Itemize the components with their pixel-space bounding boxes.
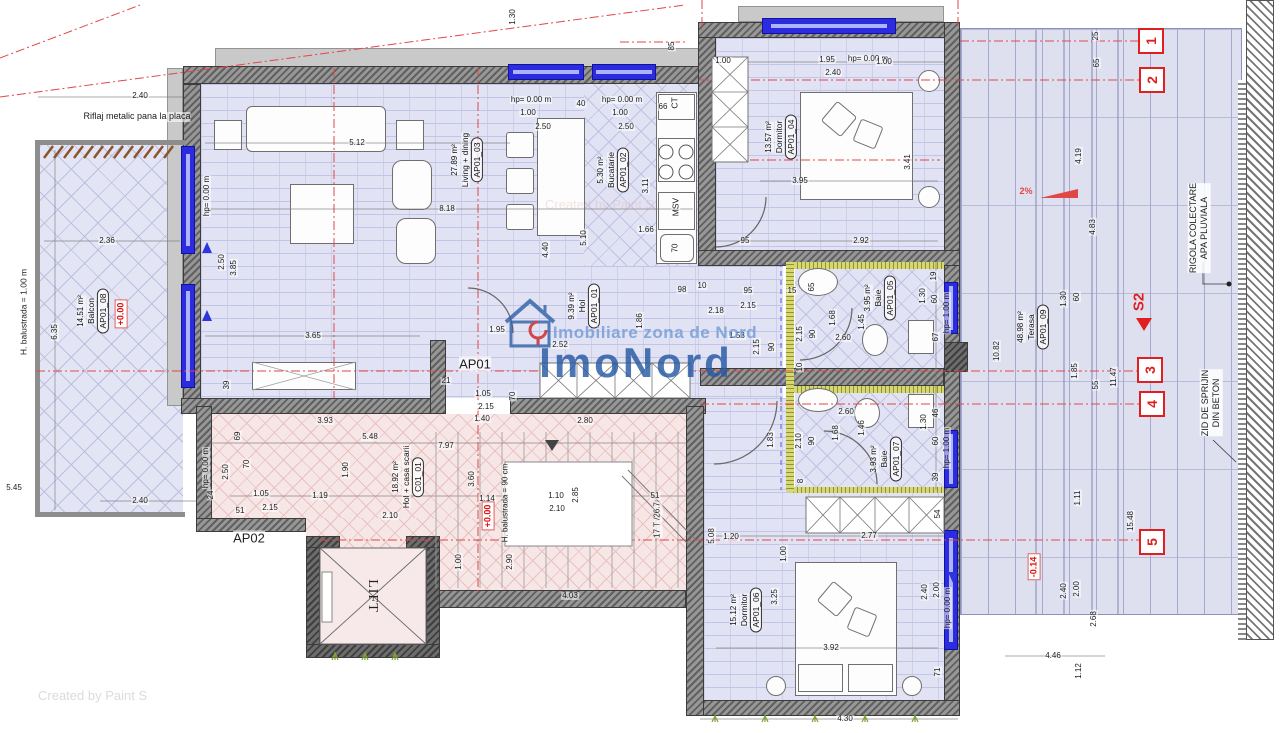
unit-label-ap01: AP01 bbox=[459, 357, 491, 372]
riflaj-note: Riflaj metalic pana la placa bbox=[83, 112, 190, 122]
section-label: S2 bbox=[1131, 293, 1148, 311]
balustrade-note: H. balustrada = 1.00 m bbox=[19, 269, 28, 355]
level-marker: +0.00 bbox=[482, 502, 495, 531]
lift-label: LIFT bbox=[364, 579, 380, 613]
grid-marker-5: 5 bbox=[1139, 529, 1165, 555]
balustrade-note-stairs: H. balustrada = 90 cm bbox=[502, 464, 511, 542]
zid-line1: ZID DE SPRIJIN bbox=[1200, 370, 1210, 437]
slope-label: 2% bbox=[1019, 186, 1032, 196]
zid-line2: DIN BETON bbox=[1211, 379, 1221, 428]
level-marker: +0.00 bbox=[115, 300, 128, 329]
unit-label-ap02: AP02 bbox=[233, 531, 265, 546]
sink-label: 70 bbox=[672, 244, 681, 253]
level-marker: -0.14 bbox=[1028, 554, 1041, 581]
grid-marker-4: 4 bbox=[1139, 391, 1165, 417]
grid-marker-1: 1 bbox=[1138, 28, 1164, 54]
rigola-line1: RIGOLA COLECTARE bbox=[1188, 183, 1198, 273]
boiler-label: CT bbox=[670, 97, 679, 108]
watermark-brand: ImoNord bbox=[539, 339, 733, 387]
dishwasher-label: MSV bbox=[671, 198, 680, 216]
grid-marker-2: 2 bbox=[1139, 67, 1165, 93]
watermark-credit-faint: Created by Paint S bbox=[545, 197, 654, 212]
grid-marker-3: 3 bbox=[1137, 357, 1163, 383]
zid-note: ZID DE SPRIJIN DIN BETON bbox=[1200, 370, 1223, 437]
watermark-credit: Created by Paint S bbox=[38, 688, 147, 703]
stairs-note: 17 T /26.7 bbox=[654, 502, 663, 538]
rigola-line2: APA PLUVIALA bbox=[1199, 197, 1209, 259]
floor-plan: 2.405.121.30hp= 0.00 m1.002.5040hp= 0.00… bbox=[0, 0, 1280, 733]
rigola-note: RIGOLA COLECTARE APA PLUVIALA bbox=[1188, 183, 1211, 273]
